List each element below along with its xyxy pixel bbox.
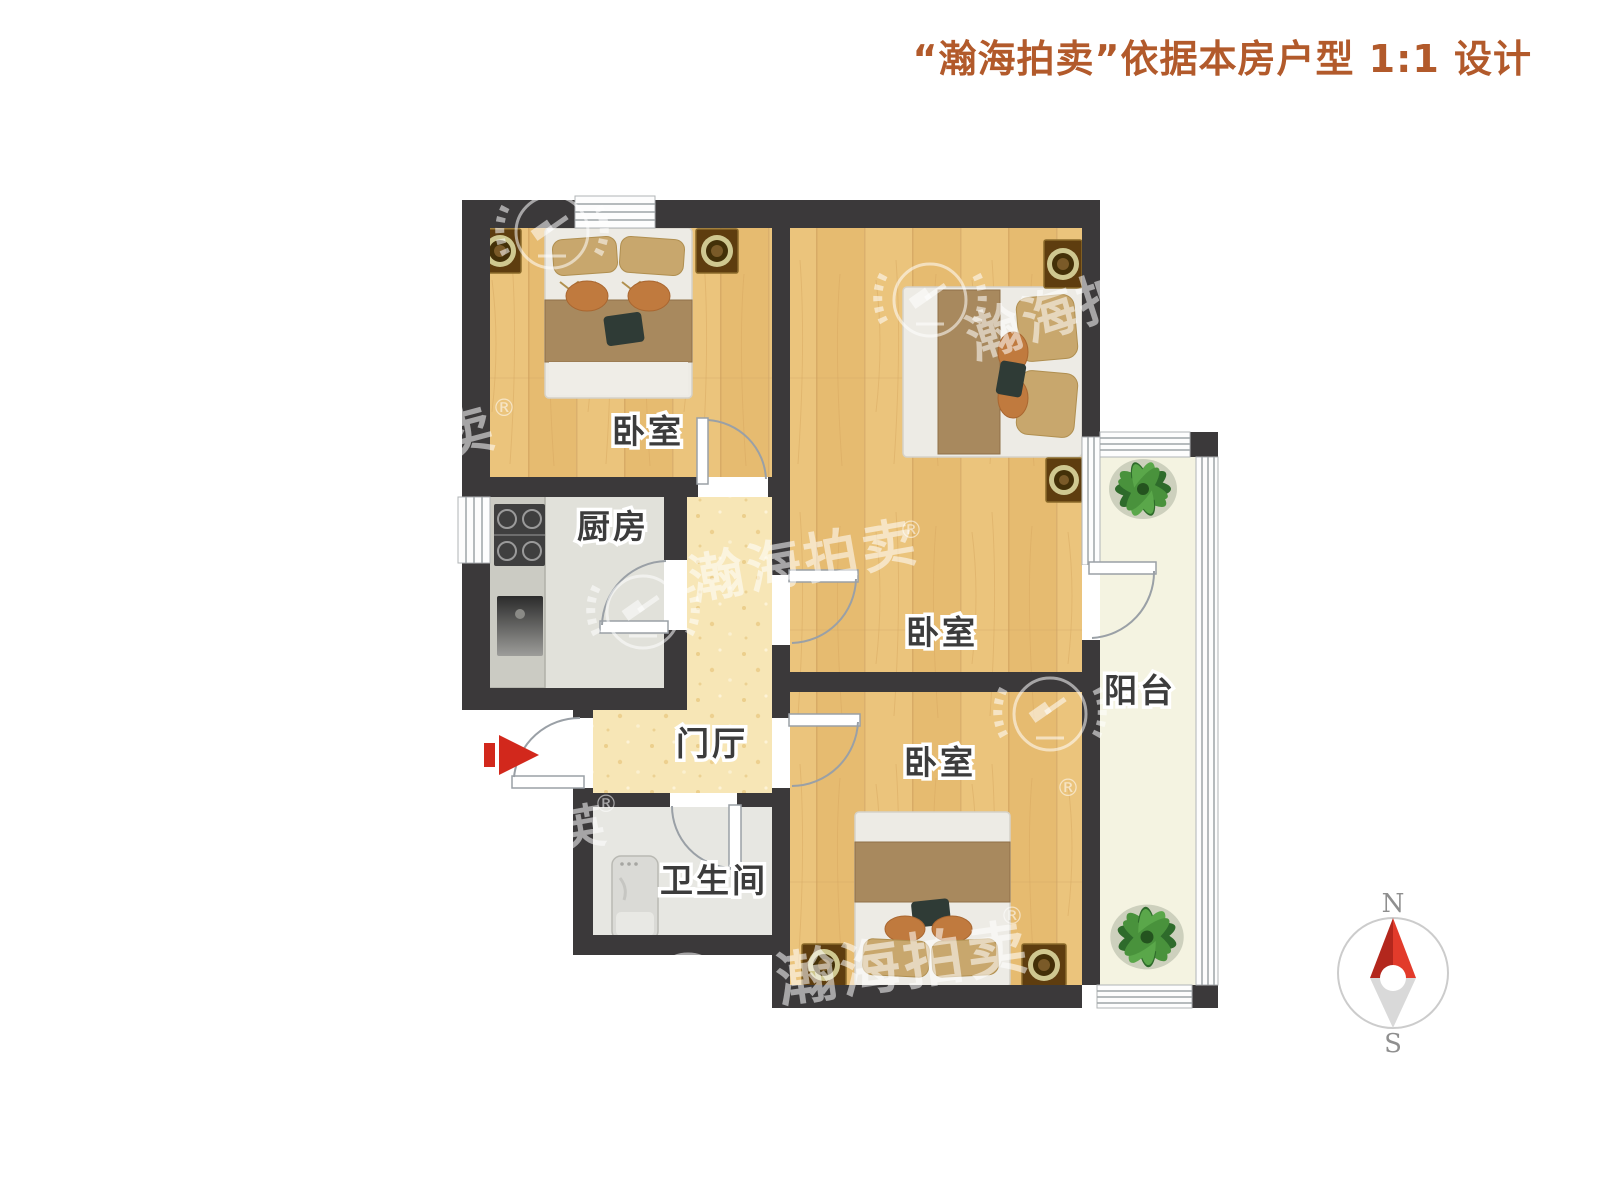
bathroom-appliance	[612, 856, 658, 940]
floor-plan-canvas: 卧室 厨房 卧室 门厅 卧室 卫生间 阳台 瀚海拍卖 瀚海拍卖 瀚海拍卖 卖 英…	[0, 0, 1600, 1200]
bedroom-2-label: 卧室	[906, 613, 978, 652]
bedroom-1-label: 卧室	[612, 412, 684, 451]
window-balcony-bottom	[1097, 985, 1192, 1008]
registered-mark: ®	[1056, 774, 1080, 802]
nightstand	[696, 229, 738, 273]
watermark-logo	[636, 954, 741, 1026]
kitchen-label: 厨房	[577, 507, 649, 546]
registered-mark: ®	[1000, 902, 1024, 930]
window-balcony-top	[1100, 432, 1190, 457]
window-bedroom2-balcony	[1082, 437, 1100, 565]
hall-label: 门厅	[676, 724, 748, 763]
registered-mark: ®	[492, 394, 516, 422]
nightstand	[1046, 458, 1082, 502]
bed-double-1	[545, 228, 692, 398]
floor-plan-page: 卧室 厨房 卧室 门厅 卧室 卫生间 阳台 瀚海拍卖 瀚海拍卖 瀚海拍卖 卖 英…	[0, 0, 1600, 1200]
kitchen-sink	[497, 596, 543, 656]
registered-mark: ®	[899, 516, 923, 544]
registered-mark: ®	[594, 790, 618, 818]
window-kitchen-left	[458, 497, 490, 563]
balcony-label: 阳台	[1104, 671, 1176, 710]
page-title: “瀚海拍卖”依据本房户型 1:1 设计	[913, 37, 1533, 81]
compass-south-label: S	[1384, 1029, 1402, 1059]
bathroom-label: 卫生间	[660, 861, 768, 900]
bedroom-3-label: 卧室	[904, 743, 976, 782]
compass: N S	[1338, 889, 1448, 1059]
compass-north-label: N	[1382, 889, 1405, 919]
plant	[1109, 459, 1177, 519]
plant	[1110, 905, 1183, 970]
window-balcony-right	[1196, 457, 1218, 985]
